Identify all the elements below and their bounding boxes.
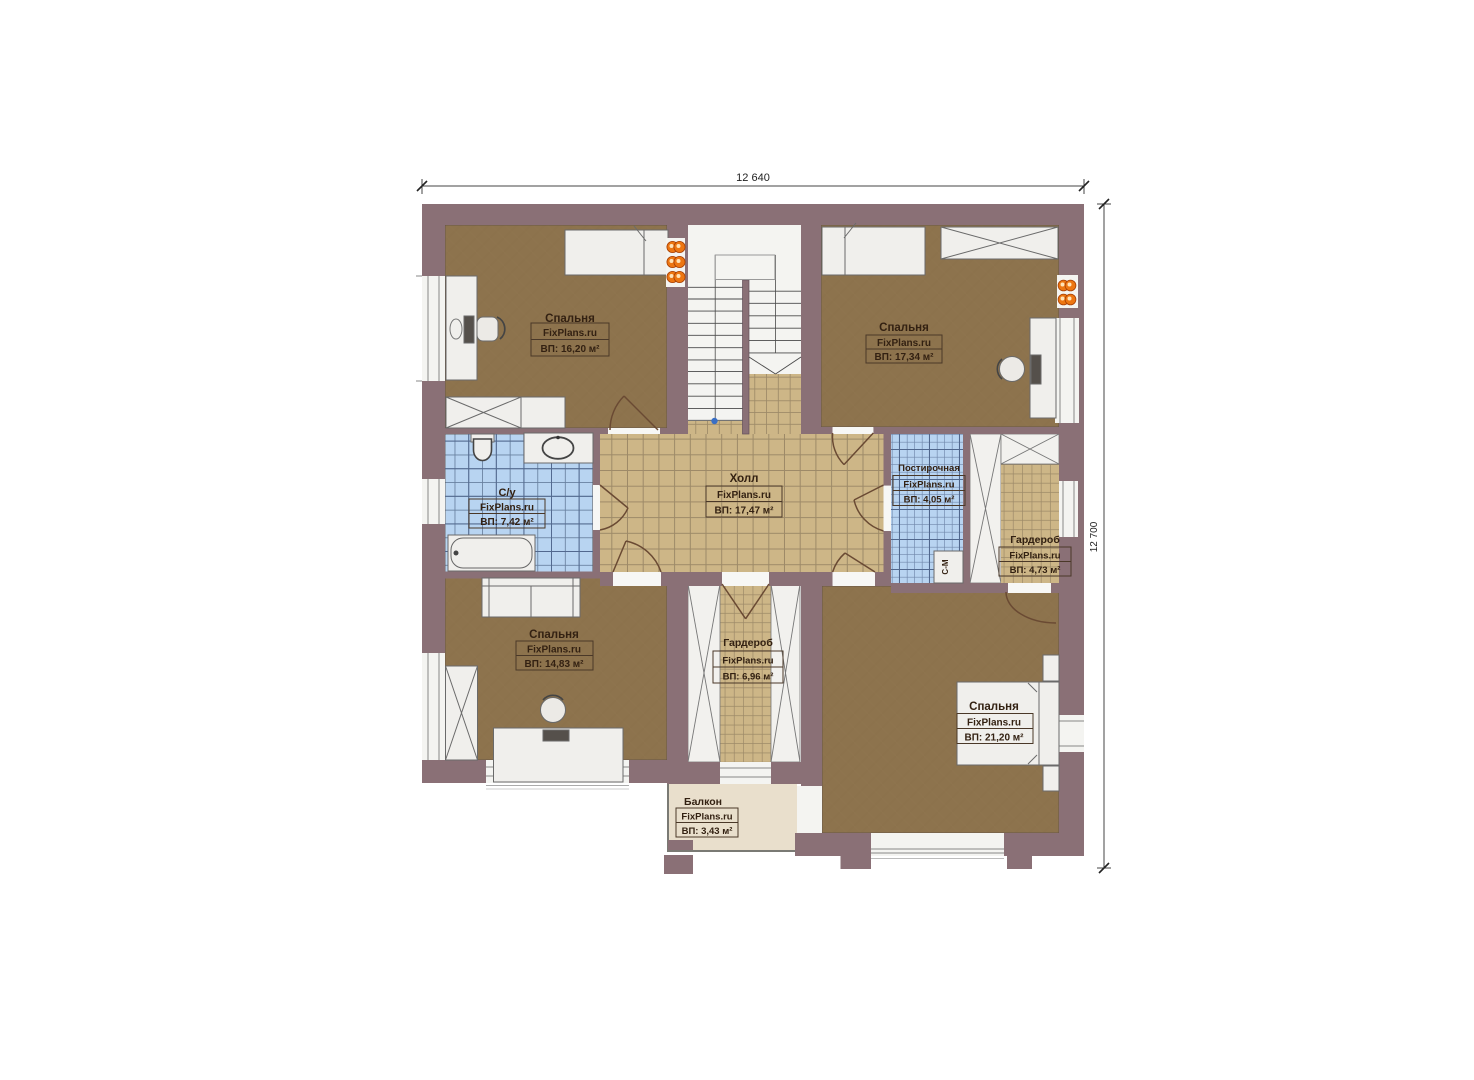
svg-text:FixPlans.ru: FixPlans.ru [967, 718, 1021, 729]
svg-text:FixPlans.ru: FixPlans.ru [903, 480, 954, 491]
svg-text:Спальня: Спальня [529, 629, 579, 641]
svg-text:ВП: 7,42 м²: ВП: 7,42 м² [480, 517, 534, 528]
svg-text:FixPlans.ru: FixPlans.ru [1009, 551, 1060, 562]
svg-text:С-М: С-М [941, 559, 950, 574]
svg-text:Холл: Холл [730, 473, 759, 485]
svg-text:Спальня: Спальня [879, 322, 929, 334]
svg-text:ВП: 21,20 м²: ВП: 21,20 м² [964, 733, 1024, 744]
svg-text:FixPlans.ru: FixPlans.ru [527, 645, 581, 656]
svg-text:ВП: 4,05 м²: ВП: 4,05 м² [904, 495, 955, 506]
svg-text:Постирочная: Постирочная [898, 463, 960, 474]
svg-text:FixPlans.ru: FixPlans.ru [722, 656, 773, 667]
svg-text:12 640: 12 640 [736, 172, 770, 184]
svg-text:ВП: 16,20 м²: ВП: 16,20 м² [540, 344, 600, 355]
svg-text:FixPlans.ru: FixPlans.ru [543, 328, 597, 339]
svg-text:Спальня: Спальня [969, 701, 1019, 713]
svg-text:ВП: 6,96 м²: ВП: 6,96 м² [723, 672, 774, 683]
svg-text:ВП: 3,43 м²: ВП: 3,43 м² [682, 826, 733, 837]
svg-text:Гардероб: Гардероб [1010, 534, 1060, 546]
svg-text:ВП: 14,83 м²: ВП: 14,83 м² [524, 659, 584, 670]
svg-text:ВП: 17,47 м²: ВП: 17,47 м² [714, 506, 774, 517]
svg-text:12 700: 12 700 [1089, 521, 1100, 552]
svg-text:ВП: 4,73 м²: ВП: 4,73 м² [1010, 565, 1061, 576]
svg-text:Гардероб: Гардероб [723, 637, 773, 649]
svg-text:FixPlans.ru: FixPlans.ru [681, 812, 732, 823]
svg-text:FixPlans.ru: FixPlans.ru [877, 338, 931, 349]
svg-text:FixPlans.ru: FixPlans.ru [717, 490, 771, 501]
svg-text:С/у: С/у [498, 487, 516, 499]
svg-text:FixPlans.ru: FixPlans.ru [480, 503, 534, 514]
svg-text:Балкон: Балкон [684, 796, 722, 808]
svg-text:ВП: 17,34 м²: ВП: 17,34 м² [874, 352, 934, 363]
